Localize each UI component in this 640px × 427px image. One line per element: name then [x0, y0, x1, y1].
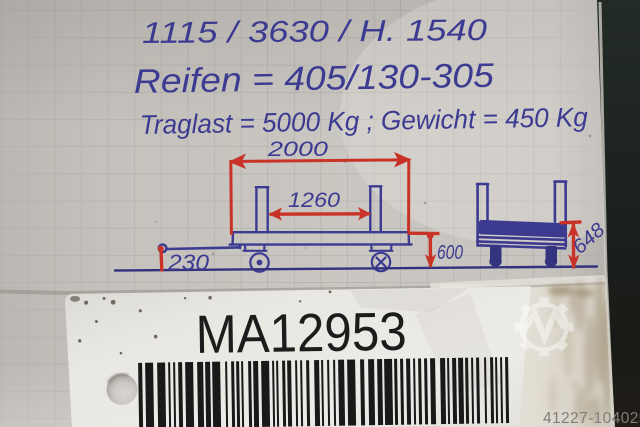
svg-text:MA12953: MA12953: [195, 302, 407, 365]
svg-text:41227-1040258: 41227-1040258: [543, 410, 640, 427]
svg-text:Reifen = 405/130-305: Reifen = 405/130-305: [134, 57, 495, 101]
svg-text:1260: 1260: [288, 189, 340, 212]
svg-text:600: 600: [437, 242, 463, 264]
svg-text:2000: 2000: [267, 138, 329, 161]
svg-text:1115 / 3630 / H. 1540: 1115 / 3630 / H. 1540: [142, 14, 488, 50]
svg-text:230: 230: [167, 250, 210, 275]
